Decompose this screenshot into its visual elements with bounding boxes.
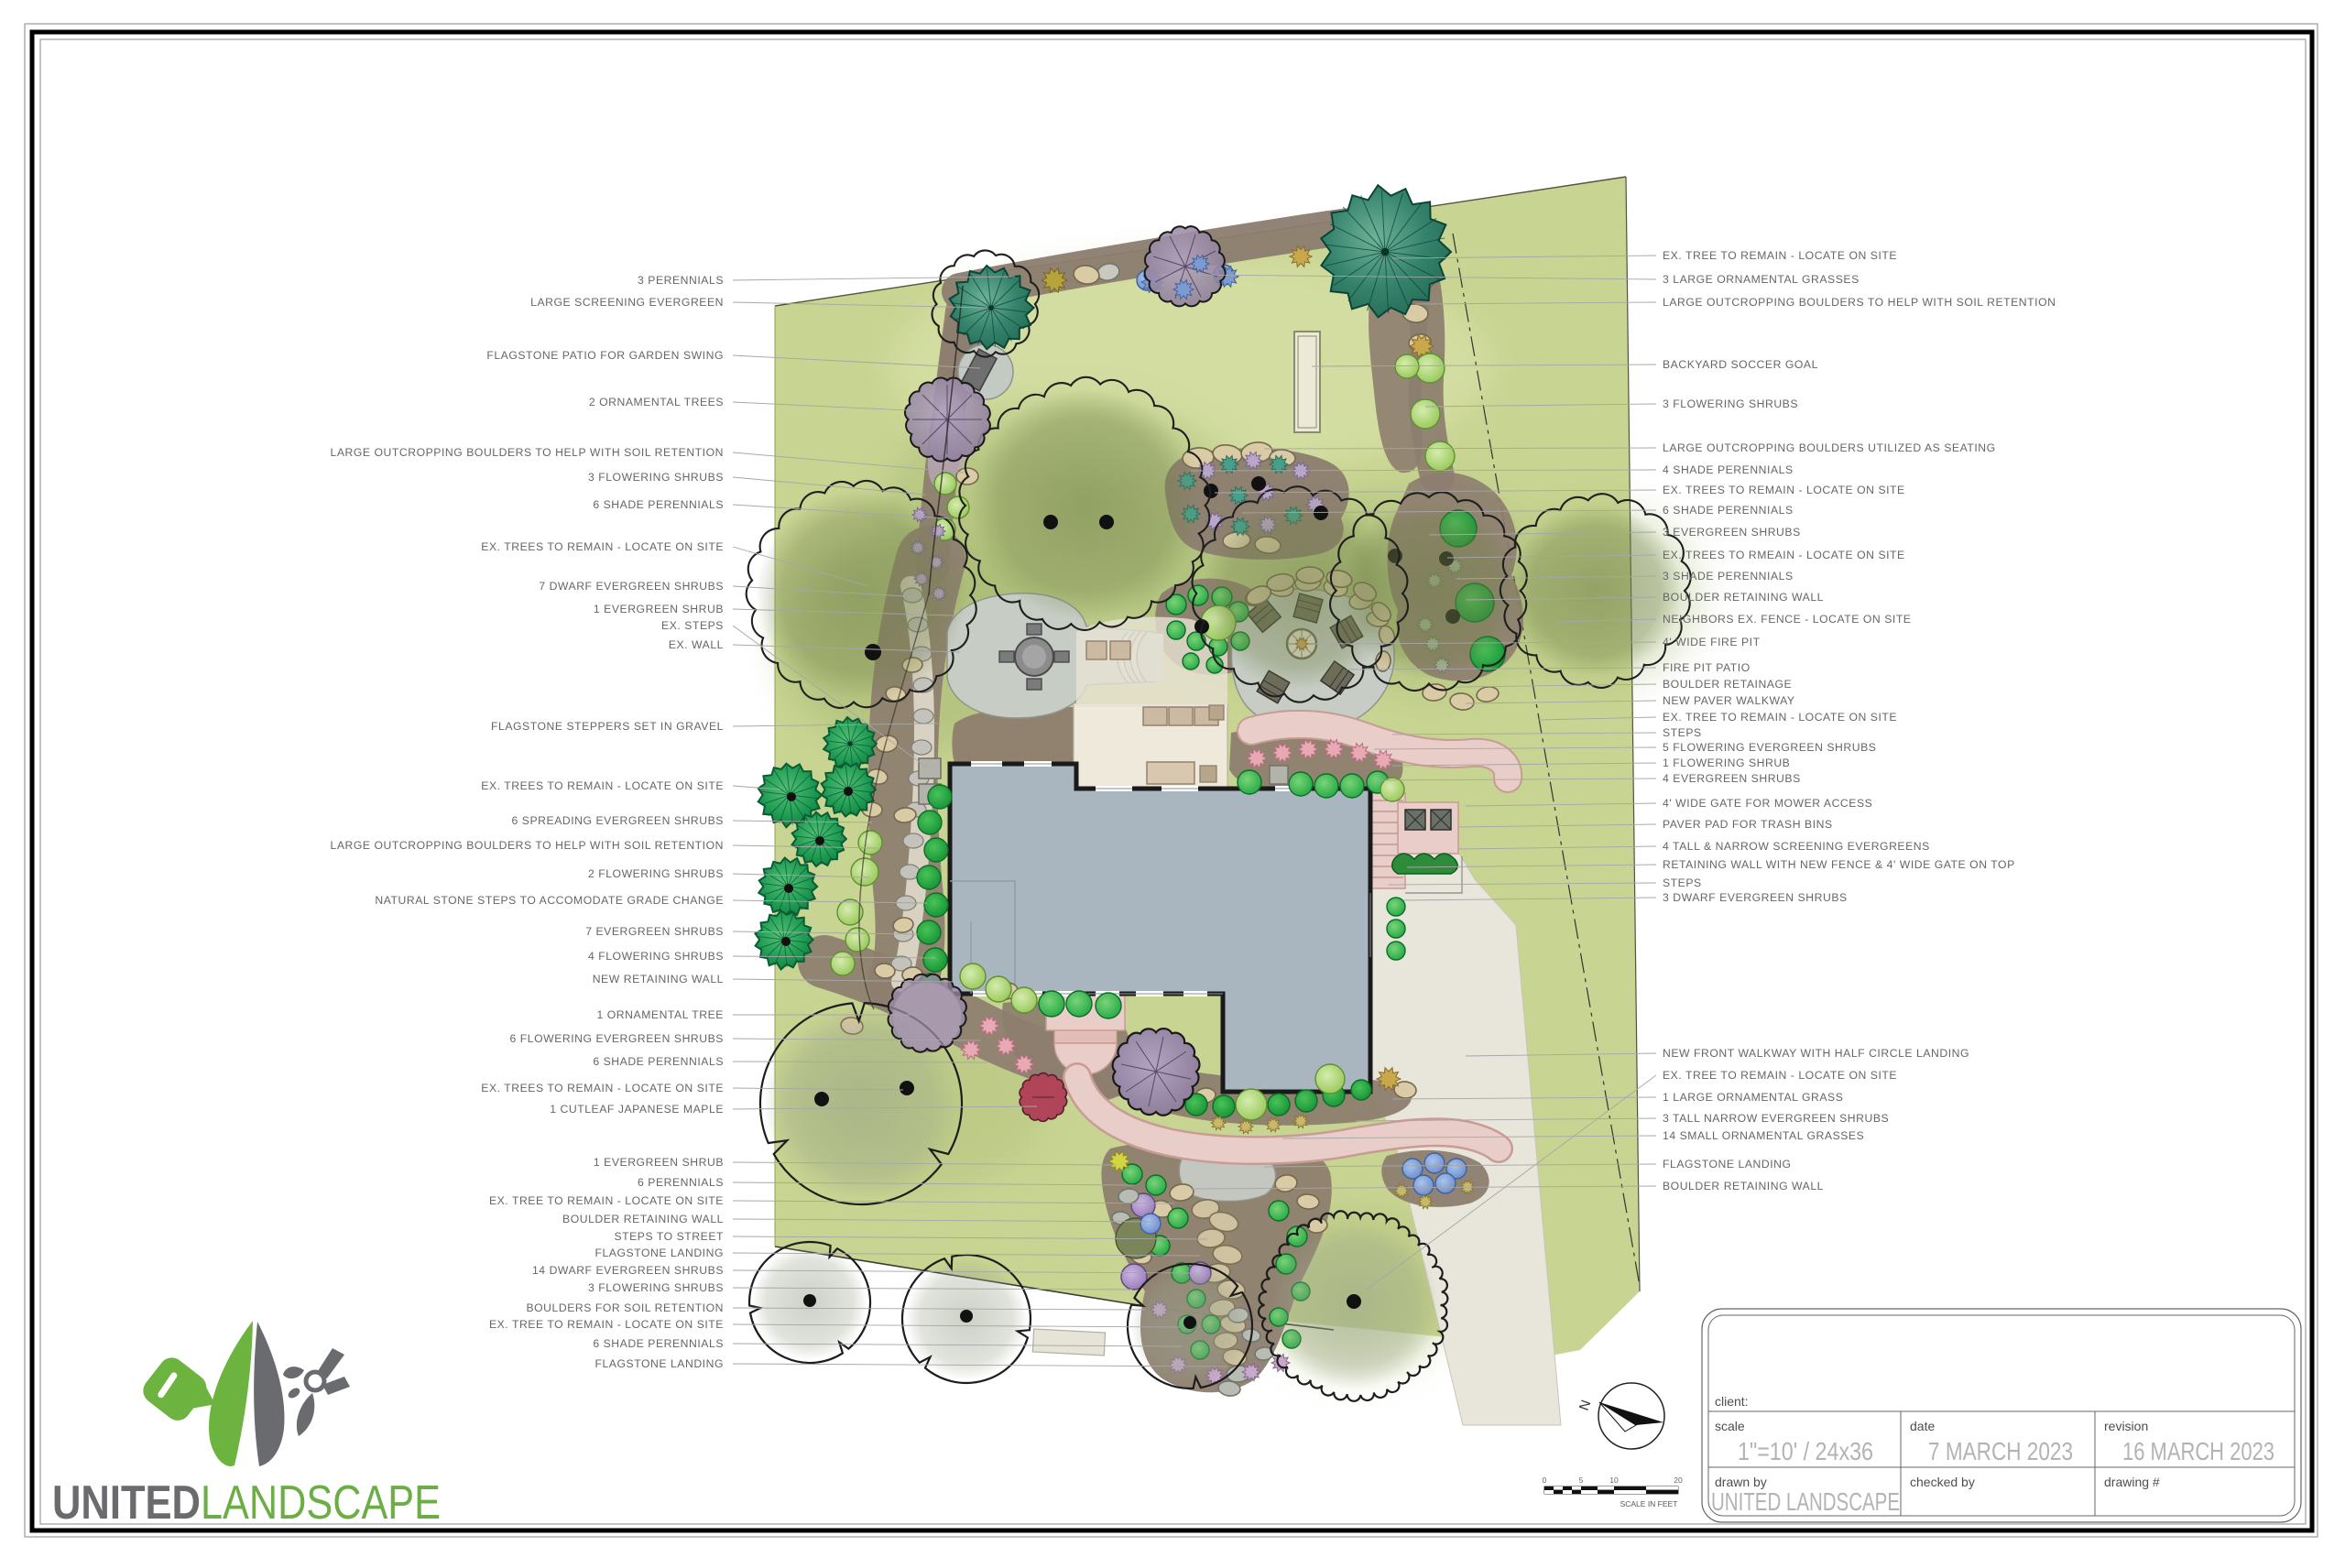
svg-text:6 SHADE PERENNIALS: 6 SHADE PERENNIALS [1663,504,1794,517]
svg-text:date: date [1910,1419,1935,1433]
svg-text:EX. TREES TO REMAIN - LOCATE O: EX. TREES TO REMAIN - LOCATE ON SITE [1663,484,1905,496]
svg-text:UNITED: UNITED [52,1476,201,1530]
svg-text:checked by: checked by [1910,1475,1975,1489]
svg-text:EX. STEPS: EX. STEPS [661,619,724,632]
svg-text:STEPS: STEPS [1663,726,1702,739]
svg-text:NATURAL STONE STEPS TO ACCOMOD: NATURAL STONE STEPS TO ACCOMODATE GRADE … [375,894,724,907]
svg-text:1 ORNAMENTAL TREE: 1 ORNAMENTAL TREE [597,1008,724,1021]
svg-text:14 SMALL ORNAMENTAL GRASSES: 14 SMALL ORNAMENTAL GRASSES [1663,1129,1864,1142]
svg-text:STEPS: STEPS [1663,877,1702,889]
svg-text:FLAGSTONE LANDING: FLAGSTONE LANDING [594,1247,724,1259]
svg-text:scale: scale [1715,1419,1745,1433]
svg-text:5 FLOWERING EVERGREEN SHRUBS: 5 FLOWERING EVERGREEN SHRUBS [1663,741,1876,754]
svg-text:4 SHADE PERENNIALS: 4 SHADE PERENNIALS [1663,463,1794,476]
svg-text:4 EVERGREEN SHRUBS: 4 EVERGREEN SHRUBS [1663,772,1801,785]
svg-text:FLAGSTONE STEPPERS SET IN GRAV: FLAGSTONE STEPPERS SET IN GRAVEL [491,720,724,733]
svg-text:LARGE SCREENING EVERGREEN: LARGE SCREENING EVERGREEN [530,296,724,309]
svg-text:20: 20 [1674,1475,1683,1485]
svg-text:EX. TREES TO RMEAIN - LOCATE O: EX. TREES TO RMEAIN - LOCATE ON SITE [1663,549,1905,561]
svg-text:3 DWARF EVERGREEN SHRUBS: 3 DWARF EVERGREEN SHRUBS [1663,891,1848,904]
svg-text:FIRE PIT PATIO: FIRE PIT PATIO [1663,661,1751,674]
svg-text:4 FLOWERING SHRUBS: 4 FLOWERING SHRUBS [588,950,724,963]
svg-text:FLAGSTONE LANDING: FLAGSTONE LANDING [1663,1158,1792,1171]
svg-text:BOULDER RETAINING WALL: BOULDER RETAINING WALL [562,1213,724,1225]
svg-text:NEW FRONT WALKWAY WITH HALF CI: NEW FRONT WALKWAY WITH HALF CIRCLE LANDI… [1663,1047,1969,1060]
svg-text:EX. TREE TO REMAIN - LOCATE ON: EX. TREE TO REMAIN - LOCATE ON SITE [1663,711,1897,724]
svg-text:FLAGSTONE LANDING: FLAGSTONE LANDING [594,1357,724,1370]
svg-text:NEW PAVER WALKWAY: NEW PAVER WALKWAY [1663,694,1795,707]
svg-text:EX. TREES TO REMAIN - LOCATE O: EX. TREES TO REMAIN - LOCATE ON SITE [481,1082,724,1094]
svg-text:1 EVERGREEN SHRUB: 1 EVERGREEN SHRUB [594,1156,724,1169]
svg-text:1 EVERGREEN SHRUB: 1 EVERGREEN SHRUB [594,603,724,615]
svg-text:4 TALL & NARROW SCREENING EVER: 4 TALL & NARROW SCREENING EVERGREENS [1663,840,1930,853]
svg-text:3 TALL NARROW EVERGREEN SHRUBS: 3 TALL NARROW EVERGREEN SHRUBS [1663,1112,1889,1125]
svg-text:EX. TREE TO REMAIN - LOCATE ON: EX. TREE TO REMAIN - LOCATE ON SITE [489,1318,724,1331]
svg-text:14 DWARF EVERGREEN SHRUBS: 14 DWARF EVERGREEN SHRUBS [532,1264,724,1277]
svg-text:EX. WALL: EX. WALL [669,638,724,651]
svg-text:6 SPREADING EVERGREEN SHRUBS: 6 SPREADING EVERGREEN SHRUBS [512,814,724,827]
svg-text:EX. TREE TO REMAIN - LOCATE ON: EX. TREE TO REMAIN - LOCATE ON SITE [489,1194,724,1207]
svg-text:LARGE OUTCROPPING BOULDERS TO: LARGE OUTCROPPING BOULDERS TO HELP WITH … [1663,296,2056,309]
svg-text:EX. TREE TO REMAIN - LOCATE ON: EX. TREE TO REMAIN - LOCATE ON SITE [1663,1069,1897,1082]
svg-text:6 SHADE PERENNIALS: 6 SHADE PERENNIALS [593,1055,724,1068]
svg-text:FLAGSTONE PATIO FOR GARDEN SWI: FLAGSTONE PATIO FOR GARDEN SWING [486,349,724,362]
svg-text:LARGE OUTCROPPING BOULDERS TO: LARGE OUTCROPPING BOULDERS TO HELP WITH … [331,839,724,852]
svg-text:1"=10' / 24x36: 1"=10' / 24x36 [1738,1437,1873,1465]
svg-text:7 DWARF EVERGREEN SHRUBS: 7 DWARF EVERGREEN SHRUBS [539,580,724,593]
svg-text:5: 5 [1579,1475,1584,1485]
svg-text:SCALE IN FEET: SCALE IN FEET [1620,1499,1678,1508]
svg-text:RETAINING WALL WITH NEW FENCE: RETAINING WALL WITH NEW FENCE & 4' WIDE … [1663,858,2015,871]
svg-text:1 CUTLEAF JAPANESE MAPLE: 1 CUTLEAF JAPANESE MAPLE [550,1103,724,1116]
svg-text:STEPS TO STREET: STEPS TO STREET [614,1230,724,1243]
svg-text:EX. TREES TO REMAIN - LOCATE O: EX. TREES TO REMAIN - LOCATE ON SITE [481,779,724,792]
svg-text:LARGE OUTCROPPING BOULDERS TO: LARGE OUTCROPPING BOULDERS TO HELP WITH … [331,446,724,459]
svg-text:4' WIDE FIRE PIT: 4' WIDE FIRE PIT [1663,636,1761,648]
svg-text:BOULDER RETAINAGE: BOULDER RETAINAGE [1663,678,1792,691]
svg-text:3 EVERGREEN SHRUBS: 3 EVERGREEN SHRUBS [1663,526,1801,539]
svg-text:BACKYARD SOCCER GOAL: BACKYARD SOCCER GOAL [1663,358,1818,371]
svg-text:3 FLOWERING SHRUBS: 3 FLOWERING SHRUBS [1663,397,1798,410]
svg-text:6 SHADE PERENNIALS: 6 SHADE PERENNIALS [593,498,724,511]
svg-text:3 PERENNIALS: 3 PERENNIALS [638,274,724,287]
svg-text:NEIGHBORS EX. FENCE - LOCATE O: NEIGHBORS EX. FENCE - LOCATE ON SITE [1663,613,1912,626]
svg-text:3 FLOWERING SHRUBS: 3 FLOWERING SHRUBS [588,471,724,484]
svg-text:6 SHADE PERENNIALS: 6 SHADE PERENNIALS [593,1337,724,1350]
svg-text:BOULDERS FOR SOIL RETENTION: BOULDERS FOR SOIL RETENTION [526,1301,724,1314]
svg-text:6 FLOWERING EVERGREEN SHRUBS: 6 FLOWERING EVERGREEN SHRUBS [510,1032,724,1045]
svg-text:2 FLOWERING SHRUBS: 2 FLOWERING SHRUBS [588,867,724,880]
svg-text:drawing #: drawing # [2104,1475,2160,1489]
svg-text:BOULDER RETAINING WALL: BOULDER RETAINING WALL [1663,591,1824,604]
svg-text:6 PERENNIALS: 6 PERENNIALS [638,1176,724,1189]
svg-text:UNITED LANDSCAPE: UNITED LANDSCAPE [1711,1487,1900,1516]
svg-text:1 LARGE ORNAMENTAL GRASS: 1 LARGE ORNAMENTAL GRASS [1663,1091,1843,1104]
svg-text:7 EVERGREEN SHRUBS: 7 EVERGREEN SHRUBS [585,925,724,938]
svg-text:PAVER PAD FOR TRASH BINS: PAVER PAD FOR TRASH BINS [1663,818,1833,831]
svg-text:revision: revision [2104,1419,2148,1433]
svg-text:0: 0 [1543,1475,1547,1485]
svg-text:1 FLOWERING SHRUB: 1 FLOWERING SHRUB [1663,757,1790,769]
svg-text:2 ORNAMENTAL TREES: 2 ORNAMENTAL TREES [589,396,724,408]
svg-text:LARGE OUTCROPPING BOULDERS UTI: LARGE OUTCROPPING BOULDERS UTILIZED AS S… [1663,441,1996,454]
svg-text:16 MARCH 2023: 16 MARCH 2023 [2122,1437,2274,1465]
svg-text:LANDSCAPE: LANDSCAPE [201,1476,441,1530]
svg-text:BOULDER RETAINING WALL: BOULDER RETAINING WALL [1663,1180,1824,1192]
svg-text:4' WIDE GATE FOR MOWER ACCESS: 4' WIDE GATE FOR MOWER ACCESS [1663,797,1872,810]
svg-text:EX. TREES TO REMAIN - LOCATE O: EX. TREES TO REMAIN - LOCATE ON SITE [481,540,724,553]
svg-text:3 FLOWERING SHRUBS: 3 FLOWERING SHRUBS [588,1281,724,1294]
svg-text:EX. TREE TO REMAIN - LOCATE ON: EX. TREE TO REMAIN - LOCATE ON SITE [1663,249,1897,262]
svg-text:3 LARGE ORNAMENTAL GRASSES: 3 LARGE ORNAMENTAL GRASSES [1663,273,1860,286]
svg-text:10: 10 [1609,1475,1619,1485]
svg-text:client:: client: [1715,1394,1749,1409]
svg-text:NEW RETAINING WALL: NEW RETAINING WALL [593,973,724,985]
svg-text:3 SHADE PERENNIALS: 3 SHADE PERENNIALS [1663,570,1794,583]
svg-text:7 MARCH 2023: 7 MARCH 2023 [1928,1437,2073,1465]
